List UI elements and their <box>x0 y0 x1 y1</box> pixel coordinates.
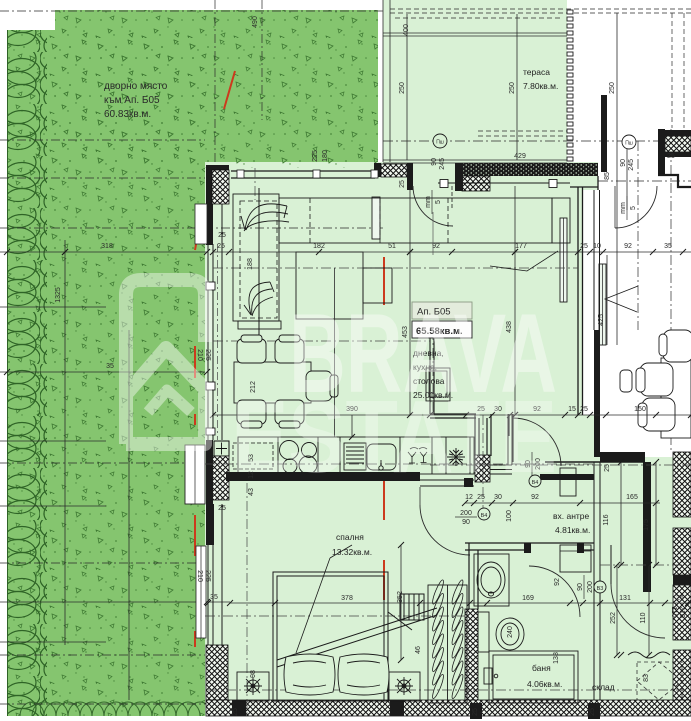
svg-text:1325: 1325 <box>55 287 62 303</box>
svg-text:490: 490 <box>252 16 259 28</box>
svg-text:177: 177 <box>515 243 527 250</box>
svg-text:25: 25 <box>218 232 226 239</box>
svg-text:210: 210 <box>196 570 203 582</box>
svg-text:98: 98 <box>250 670 257 678</box>
svg-text:В4: В4 <box>481 513 488 519</box>
svg-text:188: 188 <box>247 258 254 270</box>
svg-text:4.06кв.м.: 4.06кв.м. <box>527 679 562 689</box>
svg-text:mm: mm <box>620 202 627 214</box>
svg-text:25: 25 <box>232 708 239 716</box>
svg-text:25: 25 <box>217 243 225 250</box>
svg-text:Пш: Пш <box>625 141 633 147</box>
svg-text:ESTATE: ESTATE <box>231 379 557 494</box>
svg-text:26: 26 <box>676 595 684 602</box>
svg-text:51: 51 <box>388 243 396 250</box>
svg-text:245: 245 <box>439 158 446 170</box>
svg-text:баня: баня <box>532 663 551 673</box>
svg-text:225: 225 <box>204 570 211 582</box>
svg-text:35: 35 <box>106 363 114 370</box>
svg-text:спалня: спалня <box>336 532 364 542</box>
svg-text:92: 92 <box>624 243 632 250</box>
svg-text:46: 46 <box>415 646 422 654</box>
svg-text:85: 85 <box>604 172 611 180</box>
svg-text:110: 110 <box>640 612 647 623</box>
svg-text:10: 10 <box>593 243 601 250</box>
svg-text:250: 250 <box>509 82 516 94</box>
svg-text:100: 100 <box>506 510 513 522</box>
svg-text:25: 25 <box>399 180 406 188</box>
svg-text:245: 245 <box>628 159 635 171</box>
svg-text:180: 180 <box>322 150 329 162</box>
svg-text:12: 12 <box>465 494 473 501</box>
svg-text:210: 210 <box>678 606 685 618</box>
svg-text:тераса: тераса <box>523 67 550 77</box>
svg-text:210: 210 <box>196 349 203 361</box>
svg-text:В3: В3 <box>597 586 604 592</box>
svg-text:182: 182 <box>313 243 325 250</box>
svg-text:25: 25 <box>604 464 611 472</box>
svg-text:429: 429 <box>514 153 526 160</box>
svg-text:150: 150 <box>634 406 646 413</box>
svg-text:240: 240 <box>507 626 514 638</box>
svg-text:mm: mm <box>425 196 432 208</box>
svg-text:110: 110 <box>670 606 677 617</box>
svg-text:131: 131 <box>619 595 631 602</box>
svg-text:склад: склад <box>592 682 615 692</box>
svg-text:дворно място: дворно място <box>104 81 168 92</box>
svg-text:200: 200 <box>460 510 472 517</box>
svg-text:250: 250 <box>399 82 406 94</box>
svg-text:Пш: Пш <box>436 140 444 146</box>
svg-text:25: 25 <box>472 708 479 716</box>
svg-text:90: 90 <box>620 159 627 167</box>
svg-text:92: 92 <box>531 494 539 501</box>
svg-text:352: 352 <box>397 591 404 603</box>
svg-text:318: 318 <box>101 243 113 250</box>
svg-text:378: 378 <box>341 595 353 602</box>
svg-text:25: 25 <box>580 243 588 250</box>
svg-text:60.83кв.м.: 60.83кв.м. <box>104 109 151 120</box>
svg-text:252: 252 <box>610 612 617 624</box>
svg-text:90: 90 <box>462 519 470 526</box>
svg-text:200: 200 <box>587 581 594 593</box>
svg-text:13.32кв.м.: 13.32кв.м. <box>332 547 372 557</box>
svg-text:400: 400 <box>403 24 410 36</box>
svg-text:5: 5 <box>435 200 442 204</box>
svg-text:165: 165 <box>626 494 638 501</box>
svg-text:35: 35 <box>664 243 672 250</box>
svg-text:169: 169 <box>522 595 534 602</box>
svg-text:15: 15 <box>568 406 576 413</box>
svg-text:25: 25 <box>580 406 588 413</box>
svg-text:175: 175 <box>643 519 650 531</box>
svg-text:25: 25 <box>477 494 485 501</box>
svg-text:225: 225 <box>204 349 211 361</box>
svg-text:250: 250 <box>609 82 616 94</box>
svg-text:30: 30 <box>494 494 502 501</box>
svg-text:5: 5 <box>630 206 637 210</box>
svg-text:138: 138 <box>553 652 560 664</box>
svg-text:25: 25 <box>589 708 596 716</box>
svg-text:116: 116 <box>603 514 610 525</box>
svg-text:7.80кв.м.: 7.80кв.м. <box>523 81 558 91</box>
svg-text:425: 425 <box>598 314 605 326</box>
svg-text:4.81кв.м.: 4.81кв.м. <box>555 525 590 535</box>
svg-text:90: 90 <box>431 158 438 166</box>
svg-text:вх. антре: вх. антре <box>553 511 590 521</box>
svg-text:83: 83 <box>643 674 650 682</box>
svg-text:35: 35 <box>210 594 218 601</box>
svg-text:25: 25 <box>667 153 675 160</box>
svg-text:към Ап. Б05: към Ап. Б05 <box>104 95 160 106</box>
svg-text:25: 25 <box>218 505 226 512</box>
svg-text:225: 225 <box>312 150 319 162</box>
svg-text:92: 92 <box>554 578 561 586</box>
svg-text:90: 90 <box>577 583 584 591</box>
